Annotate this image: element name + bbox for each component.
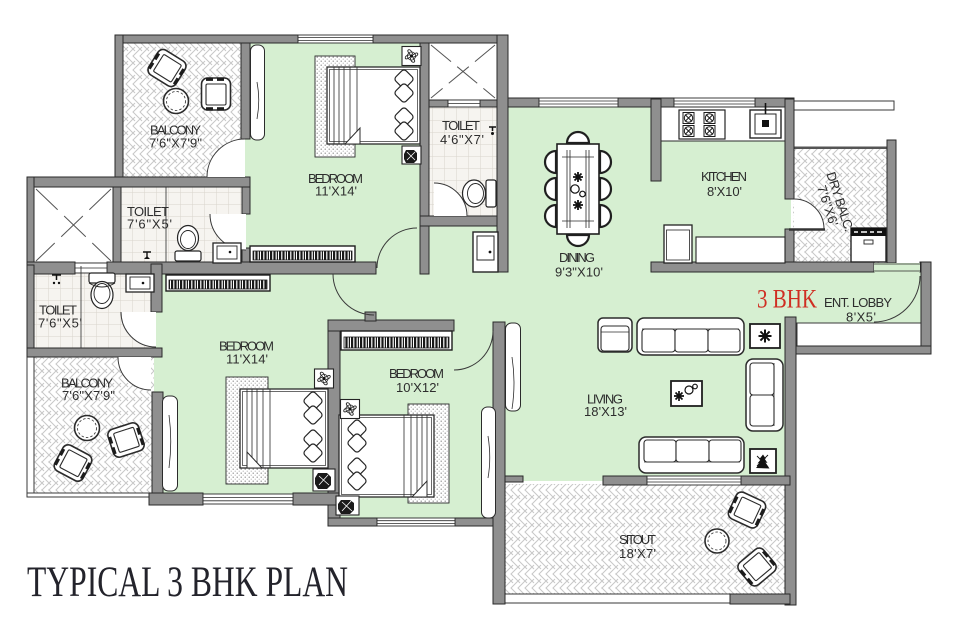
svg-text:KITCHEN: KITCHEN [701,169,747,184]
svg-text:TYPICAL 3 BHK PLAN: TYPICAL 3 BHK PLAN [27,559,348,606]
svg-text:11'X14': 11'X14' [315,184,357,199]
svg-text:9'3"X10': 9'3"X10' [555,265,603,280]
svg-text:4'6"X7': 4'6"X7' [440,132,484,147]
svg-text:7'6"X5': 7'6"X5' [38,316,82,331]
svg-text:3 BHK: 3 BHK [757,285,817,314]
svg-text:7'6"X7'9": 7'6"X7'9" [62,388,115,403]
svg-text:7'6"X7'9": 7'6"X7'9" [149,136,202,151]
svg-text:10'X12': 10'X12' [396,380,439,395]
svg-text:TOILET: TOILET [442,118,480,133]
svg-text:ENT. LOBBY: ENT. LOBBY [824,295,892,310]
svg-text:7'6"X5': 7'6"X5' [127,217,172,232]
svg-text:11'X14': 11'X14' [226,352,268,367]
svg-text:8'X5': 8'X5' [846,310,876,325]
svg-text:SITOUT: SITOUT [619,532,656,547]
svg-text:8'X10': 8'X10' [707,184,742,199]
svg-text:BEDROOM: BEDROOM [389,366,444,381]
svg-text:DINING: DINING [559,250,595,265]
svg-text:18'X13': 18'X13' [584,404,627,419]
svg-text:18'X7': 18'X7' [619,546,656,561]
